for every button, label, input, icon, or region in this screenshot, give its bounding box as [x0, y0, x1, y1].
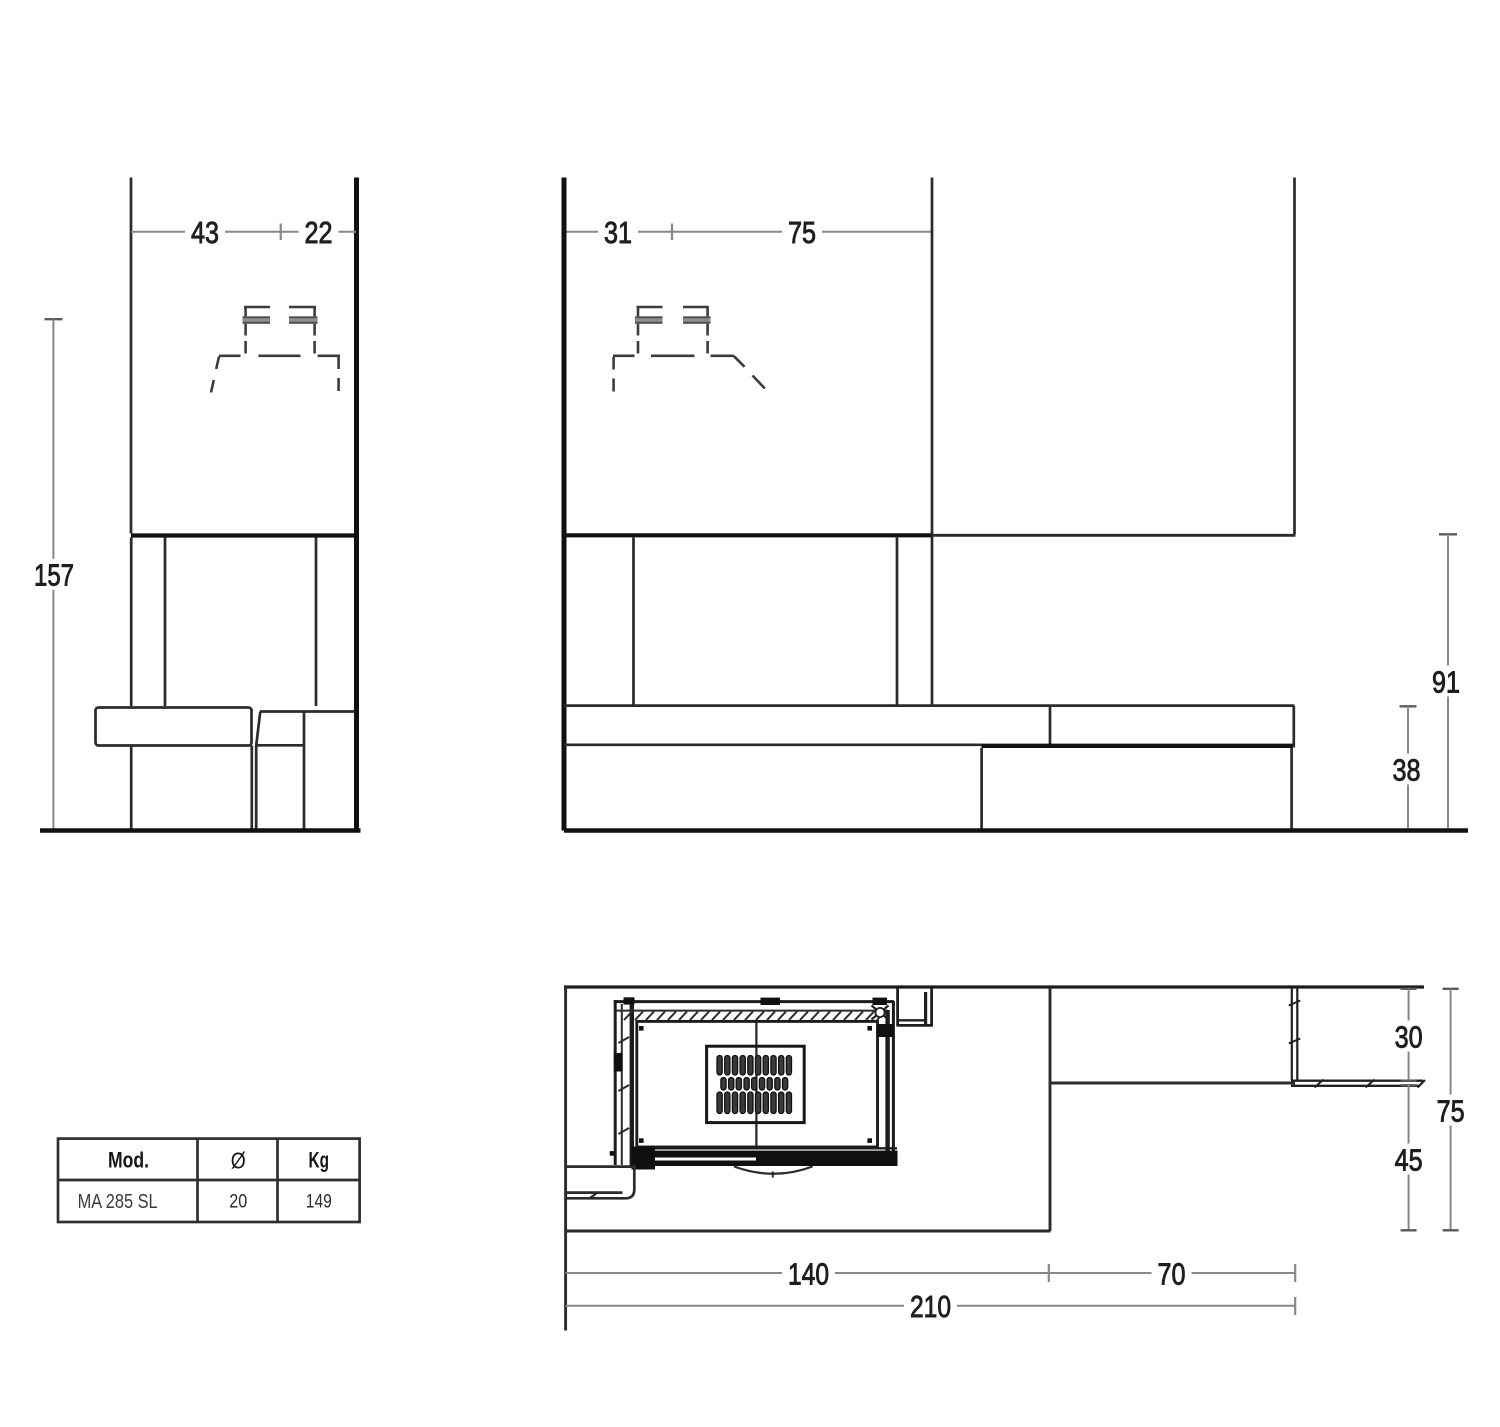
svg-text:20: 20 [229, 1192, 247, 1213]
svg-text:149: 149 [306, 1192, 332, 1213]
svg-text:70: 70 [1158, 1256, 1186, 1291]
svg-text:140: 140 [788, 1256, 829, 1291]
svg-text:91: 91 [1432, 664, 1460, 699]
svg-text:75: 75 [1437, 1093, 1465, 1128]
svg-text:210: 210 [910, 1289, 951, 1324]
svg-text:Ø: Ø [231, 1147, 246, 1173]
svg-text:75: 75 [788, 215, 816, 250]
svg-text:MA 285 SL: MA 285 SL [78, 1191, 158, 1213]
svg-text:22: 22 [305, 215, 333, 250]
svg-text:43: 43 [191, 215, 219, 250]
svg-text:38: 38 [1393, 752, 1421, 787]
svg-text:Kg: Kg [309, 1147, 330, 1172]
svg-text:45: 45 [1395, 1142, 1423, 1177]
svg-text:30: 30 [1395, 1019, 1423, 1054]
svg-text:157: 157 [34, 558, 74, 593]
svg-text:31: 31 [604, 215, 632, 250]
svg-text:Mod.: Mod. [108, 1147, 149, 1172]
